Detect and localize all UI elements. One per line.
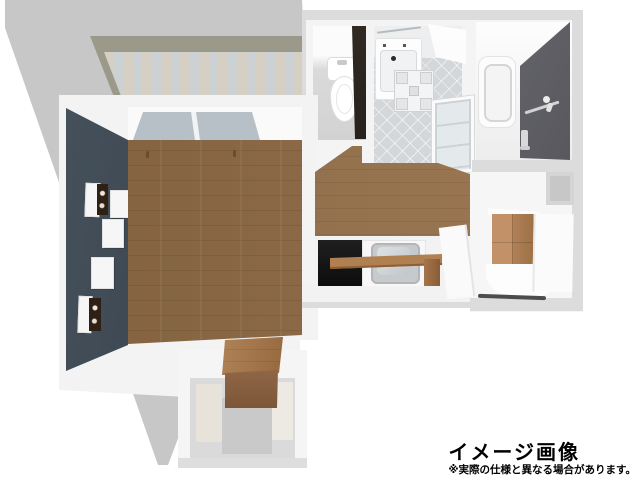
vanity-faucet: [391, 56, 396, 61]
bath-faucet-spout: [520, 146, 530, 150]
floorplan-render: イメージ画像 ※実際の仕様と異なる場合があります。: [0, 0, 640, 480]
washer-drain: [409, 86, 419, 96]
kitchen-bottom-edge: [302, 302, 482, 308]
shelf-box-2: [110, 190, 130, 218]
washer-pan-corner-br: [420, 98, 432, 110]
entrance-step-top: [222, 337, 283, 375]
shelf-box-4: [91, 257, 114, 289]
porch-bottom-edge: [178, 458, 307, 468]
floor-stopper-right: [233, 150, 236, 157]
shelf-box-1-interior: [97, 184, 108, 215]
bathtub-inner: [484, 64, 512, 122]
right-outer-wall: [572, 14, 583, 310]
caption-title: イメージ画像: [448, 436, 580, 465]
shelf-box-3: [102, 219, 124, 248]
washer-pan-corner-tl: [396, 72, 408, 84]
closet-door-right: [532, 214, 573, 293]
entrance-step-front: [225, 370, 278, 408]
vanity-handle-left: [383, 44, 386, 47]
washer-pan-corner-tr: [420, 72, 432, 84]
porch-wall-left: [196, 384, 222, 442]
toilet-flush-button: [337, 60, 347, 65]
vanity-handle-right: [403, 44, 406, 47]
toilet-seat-line: [336, 84, 353, 114]
right-bottom-wall: [470, 298, 583, 311]
caption-disclaimer: ※実際の仕様と異なる場合があります。: [448, 462, 636, 477]
shelf-box-5-interior: [89, 298, 101, 331]
washer-pan-corner-bl: [396, 98, 408, 110]
floor-stopper-left: [146, 151, 149, 158]
closet-window: [546, 172, 574, 205]
